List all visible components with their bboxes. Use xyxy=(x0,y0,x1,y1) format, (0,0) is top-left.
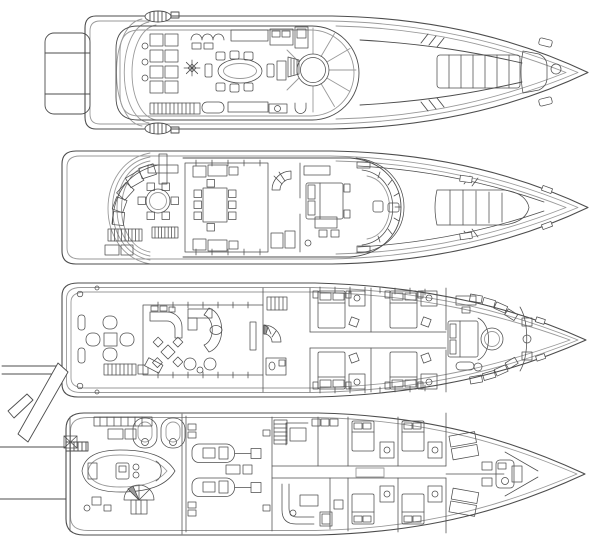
cleat xyxy=(460,175,473,183)
cleat xyxy=(541,221,552,229)
swim-platform xyxy=(0,442,88,499)
starboard-engine xyxy=(192,478,261,497)
aft-lounge-seats xyxy=(202,102,306,114)
sky-lounge xyxy=(185,160,268,255)
engine-room xyxy=(186,416,272,532)
tender xyxy=(82,450,175,492)
armchair xyxy=(184,358,196,370)
spiral-staircase xyxy=(124,485,154,514)
tv-cabinet xyxy=(250,322,256,350)
compass-rose xyxy=(184,60,200,76)
master-suite xyxy=(446,288,518,392)
round-table xyxy=(138,183,179,220)
main-deck-plan xyxy=(2,283,586,442)
cross-table xyxy=(148,154,178,184)
cleat xyxy=(538,38,552,48)
sun-deck-platform xyxy=(116,26,359,120)
lounge-chairs xyxy=(191,34,224,49)
side-walkways xyxy=(358,166,544,247)
aft-deck-loungers xyxy=(78,315,134,363)
guest-cabin xyxy=(385,352,437,389)
crew-mess xyxy=(286,419,338,445)
jet-ski xyxy=(161,418,185,448)
jet-ski xyxy=(133,418,157,448)
guest-cabin xyxy=(313,291,365,328)
curved-sofa xyxy=(204,308,222,352)
console-cabinet xyxy=(277,61,286,80)
master-bed xyxy=(448,321,478,357)
deckhouse-outline xyxy=(183,158,401,257)
spiral-staircase xyxy=(271,171,295,248)
stairs xyxy=(104,358,163,375)
yacht-deck-plans-figure xyxy=(0,0,600,540)
hull-outline xyxy=(66,413,585,535)
l-sofa xyxy=(188,309,212,318)
deck-plans-canvas xyxy=(0,0,600,540)
crew-cabin xyxy=(352,421,394,458)
cleat xyxy=(538,97,552,107)
card-table xyxy=(143,327,193,377)
sun-deck-plan xyxy=(45,11,588,134)
bow-sunpad xyxy=(435,190,529,225)
fore-peak-crew xyxy=(446,432,538,517)
lower-deck-plan xyxy=(0,394,585,535)
port-engine xyxy=(192,444,261,463)
cleat xyxy=(460,232,473,240)
spa-pool xyxy=(288,54,329,86)
galley xyxy=(282,484,343,526)
bridge-deck-plan xyxy=(62,151,588,264)
crew-cabin xyxy=(402,421,442,458)
corridor xyxy=(310,332,446,348)
oval-dining-table xyxy=(205,51,274,92)
stairs xyxy=(150,103,200,114)
stairs xyxy=(274,420,287,444)
stairs xyxy=(105,227,178,255)
helm-seat xyxy=(373,201,383,212)
tender-garage xyxy=(64,414,185,534)
captain-cabin xyxy=(300,163,350,252)
guest-cabin xyxy=(385,291,437,328)
cleat xyxy=(541,185,552,193)
cleat xyxy=(536,354,546,362)
crew-cabin xyxy=(352,486,394,524)
wheelhouse xyxy=(356,158,404,253)
dining-table xyxy=(203,188,227,222)
aft-platform xyxy=(45,33,90,114)
passerelle xyxy=(2,363,68,442)
cleat xyxy=(535,317,545,325)
sun-loungers xyxy=(142,34,178,93)
armchair xyxy=(204,358,216,370)
lobby xyxy=(263,288,310,392)
bar xyxy=(150,312,182,338)
guest-cabin xyxy=(313,352,365,389)
